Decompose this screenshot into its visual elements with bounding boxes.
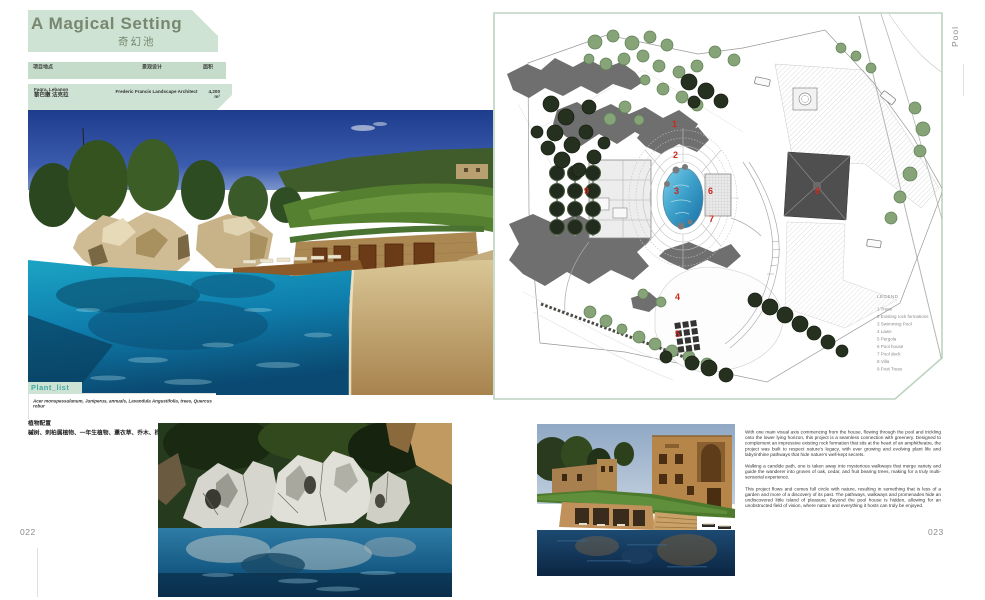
plan-marker-pool-deck: 7 — [709, 214, 714, 224]
left-footer-rule — [37, 548, 38, 597]
plan-marker-pool-house: 6 — [708, 186, 713, 196]
plan-marker-fruit-trees: 9 — [584, 186, 589, 196]
page-number-left: 022 — [20, 527, 36, 537]
rock-formation-photo — [158, 423, 452, 597]
plant-list-box: Acer monspessulanum, Juniperus, annuals,… — [28, 393, 218, 421]
article-paragraph: With one main visual axis commencing fro… — [745, 429, 941, 457]
project-meta-header: 项目地点 景观设计 面积 — [28, 62, 226, 79]
plan-marker-pergola: 5 — [675, 329, 680, 339]
plan-marker-villa: 8 — [815, 186, 820, 196]
plan-marker-lawn: 4 — [675, 292, 680, 302]
plan-marker-trees: 1 — [672, 119, 677, 129]
legend-title: LEGEND — [877, 293, 943, 301]
main-pool-photo — [28, 110, 493, 395]
plant-list-text: Acer monspessulanum, Juniperus, annuals,… — [29, 394, 217, 420]
chapter-side-label: Pool — [950, 26, 960, 47]
legend-item: 9 Fruit Trees — [877, 366, 943, 374]
legend-item: 4 Lawn — [877, 328, 943, 336]
legend-item: 8 Villa — [877, 358, 943, 366]
plan-marker-swimming-pool: 3 — [674, 186, 679, 196]
meta-label-area: 面积 — [197, 63, 226, 71]
legend-item: 1 Trees — [877, 306, 943, 314]
project-meta-values: Faqra, Lebanon 黎巴嫩 法克拉 Frederic Francis … — [28, 84, 232, 110]
article-paragraph: This project flows and comes full circle… — [745, 486, 941, 508]
meta-value-area: 4,200 m² — [204, 87, 232, 97]
meta-label-designer: 景观设计 — [107, 63, 197, 71]
legend-item: 7 Pool deck — [877, 351, 943, 359]
plant-list-chip: Plant_list — [28, 382, 82, 394]
site-plan: 1 2 3 4 5 6 7 8 9 LEGEND 1 Trees 2 Exist… — [493, 12, 943, 400]
meta-value-location-chinese: 黎巴嫩 法克拉 — [34, 93, 109, 99]
meta-label-location: 项目地点 — [28, 63, 107, 71]
page-title: A Magical Setting — [31, 14, 182, 34]
villa-pool-photo — [537, 424, 735, 576]
legend-item: 2 Existing rock formations — [877, 313, 943, 321]
legend-item: 5 Pergola — [877, 336, 943, 344]
legend-item: 6 Pool house — [877, 343, 943, 351]
page-title-chinese: 奇幻池 — [118, 34, 156, 49]
right-header-rule — [963, 64, 964, 96]
legend-item: 3 Swimming Pool — [877, 321, 943, 329]
meta-value-designer: Frederic Francis Landscape Architect — [109, 87, 204, 97]
article-text: With one main visual axis commencing fro… — [745, 429, 941, 599]
plant-list-label: Plant_list — [28, 382, 82, 392]
article-paragraph: Walking a candide path, one is taken awa… — [745, 463, 941, 480]
plan-marker-rock-formations: 2 — [673, 150, 678, 160]
page-number-right: 023 — [928, 527, 944, 537]
